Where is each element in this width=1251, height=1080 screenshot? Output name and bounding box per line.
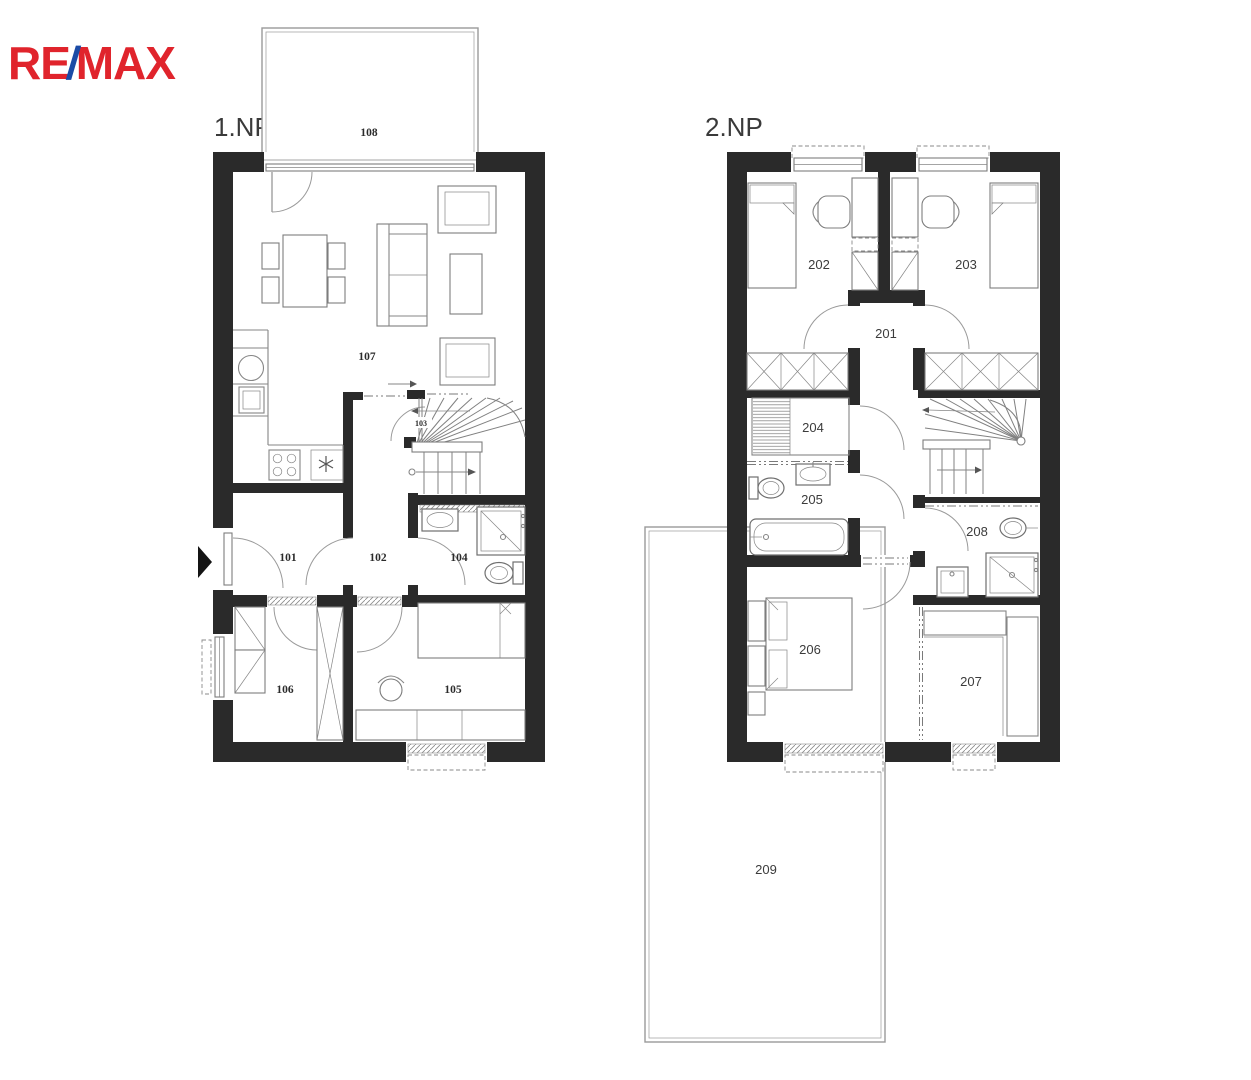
bathtub-icon — [750, 519, 848, 555]
desk-chair — [378, 676, 404, 701]
wardrobe-row — [925, 353, 1038, 390]
room-104-label: 104 — [450, 552, 468, 564]
floor2-bathroom-205 — [749, 462, 848, 555]
floor1-window-bottom — [408, 744, 485, 770]
washing-machine-icon — [937, 567, 968, 597]
room-105-label: 105 — [444, 684, 462, 696]
fridge-icon — [311, 450, 343, 480]
floor1-terrace-108 — [262, 28, 478, 159]
washbasin-icon — [422, 509, 458, 531]
floor1-bathroom-104 — [420, 505, 525, 584]
floor1-bedroom-105 — [356, 603, 525, 740]
wardrobe-row — [747, 353, 848, 390]
room-108-label: 108 — [360, 127, 378, 139]
room-203-label: 203 — [955, 257, 977, 272]
room-107-label: 107 — [358, 351, 376, 363]
desk-chair — [813, 196, 850, 228]
armchair-bottom — [440, 338, 495, 385]
dining-table — [262, 235, 345, 307]
wardrobe — [892, 252, 918, 290]
floor2-window-top-right — [917, 146, 989, 171]
wardrobe — [852, 252, 878, 290]
floor2-window-top-left — [792, 146, 864, 171]
coffee-table — [450, 254, 482, 314]
desk — [892, 178, 918, 237]
washbasin-icon — [1000, 518, 1038, 538]
floor1-plan: 101 102 103 104 105 106 107 108 — [198, 28, 545, 770]
floor2-window-bottom-left — [785, 744, 883, 772]
room-101-label: 101 — [279, 552, 297, 564]
bed-single — [990, 183, 1038, 288]
nightstand — [748, 692, 765, 715]
floorplan-canvas: RE/MAX 1.NP 2.NP — [0, 0, 1251, 1080]
kitchen-sink-icon — [239, 356, 264, 381]
floor1-stairs — [409, 398, 525, 494]
floor1-room-106 — [235, 607, 343, 740]
desk-chair — [922, 196, 959, 228]
toilet-icon — [749, 477, 784, 499]
nightstand — [748, 601, 765, 641]
room-204-label: 204 — [802, 420, 824, 435]
shelf — [892, 238, 918, 251]
shower-icon — [477, 507, 525, 555]
floor1-living-room — [262, 186, 496, 385]
room-206-label: 206 — [799, 642, 821, 657]
washbasin-icon — [796, 462, 830, 485]
desk — [852, 178, 878, 237]
desk — [356, 710, 525, 740]
floor2-window-bottom-right — [953, 744, 995, 770]
room-202-label: 202 — [808, 257, 830, 272]
nightstand — [748, 646, 765, 686]
floor1-terrace-door-swing — [272, 172, 312, 212]
room-106-label: 106 — [276, 684, 294, 696]
floor1-entrance-door — [198, 533, 283, 588]
floor1-exit-arrow-icon — [388, 381, 417, 388]
shower-icon — [986, 553, 1038, 597]
floor1-kitchen — [233, 330, 343, 483]
room-102-label: 102 — [369, 552, 387, 564]
room-209-label: 209 — [755, 862, 777, 877]
entrance-arrow-icon — [198, 546, 212, 578]
sofa — [377, 224, 427, 326]
room-205-label: 205 — [801, 492, 823, 507]
bed-single — [748, 183, 796, 288]
toilet-icon — [485, 562, 523, 584]
room-207-label: 207 — [960, 674, 982, 689]
room-201-label: 201 — [875, 326, 897, 341]
floor2-closet-204 — [752, 398, 849, 455]
shelf — [852, 238, 878, 251]
floor2-stairs — [922, 399, 1026, 494]
floorplan-drawing: 101 102 103 104 105 106 107 108 — [0, 0, 1251, 1080]
cooktop-icon — [269, 450, 300, 480]
bed-single — [418, 603, 525, 658]
armchair-top — [438, 186, 496, 233]
room-208-label: 208 — [966, 524, 988, 539]
room-103-label: 103 — [415, 419, 427, 428]
